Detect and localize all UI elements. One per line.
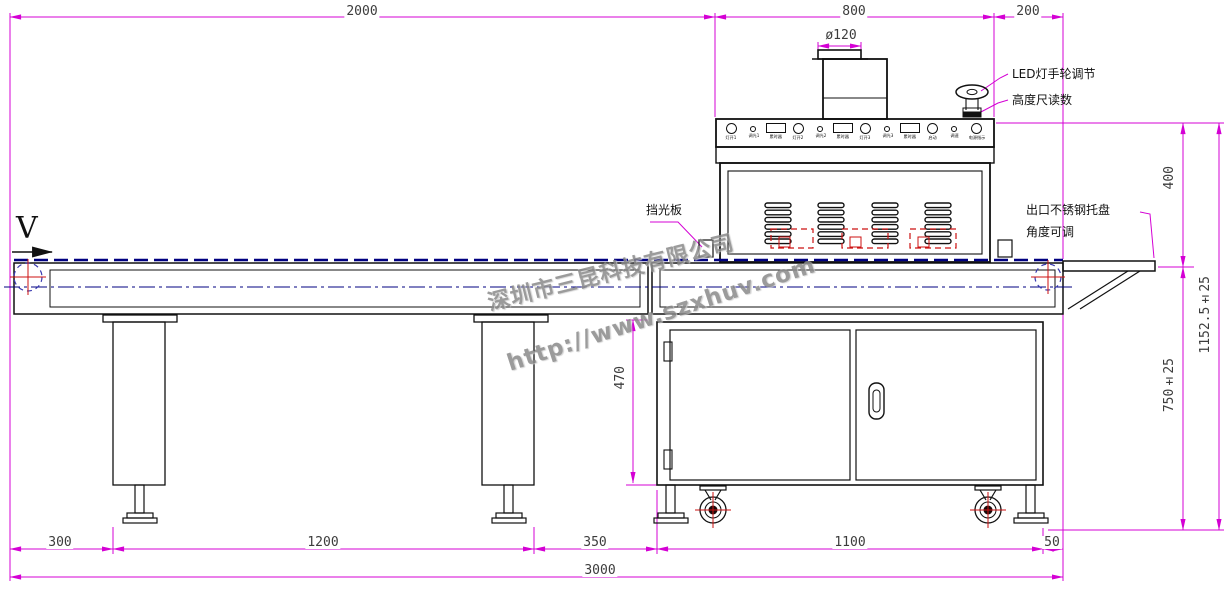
panel-control-7: 灯开3 bbox=[854, 120, 876, 146]
panel-control-label: 灯开3 bbox=[860, 135, 871, 141]
dim-right-total: 1152.5±25 bbox=[1199, 276, 1213, 354]
cabinet-door-right bbox=[856, 330, 1036, 480]
timer-display bbox=[900, 123, 920, 133]
panel-control-label: 累时器 bbox=[837, 134, 849, 140]
control-knob bbox=[971, 123, 982, 134]
door-hinge-top bbox=[664, 342, 672, 361]
panel-control-3: 累时器 bbox=[765, 120, 787, 146]
dim-top-800: 800 bbox=[840, 5, 867, 18]
control-knob bbox=[817, 126, 823, 132]
exhaust-duct bbox=[812, 50, 887, 119]
panel-control-label: 启动 bbox=[928, 135, 936, 141]
panel-control-9: 累时器 bbox=[899, 120, 921, 146]
conveyor-legs bbox=[103, 315, 548, 523]
control-knob bbox=[860, 123, 871, 134]
panel-control-12: 电源指示 bbox=[966, 120, 988, 146]
dim-bottom-50: 50 bbox=[1042, 536, 1062, 549]
panel-control-1: 灯开1 bbox=[720, 120, 742, 146]
panel-control-label: 累时器 bbox=[904, 134, 916, 140]
panel-control-8: 调光3 bbox=[876, 120, 898, 146]
casters bbox=[695, 486, 1006, 528]
panel-control-11: 调速 bbox=[943, 120, 965, 146]
control-knob bbox=[927, 123, 938, 134]
panel-control-label: 灯开2 bbox=[793, 135, 804, 141]
control-knob bbox=[884, 126, 890, 132]
label-velocity: V bbox=[16, 214, 38, 244]
outlet-tray bbox=[1063, 261, 1155, 309]
dim-right-400: 400 bbox=[1163, 166, 1177, 189]
dim-bottom-1100: 1100 bbox=[832, 536, 867, 549]
timer-display bbox=[766, 123, 786, 133]
label-light-baffle: 挡光板 bbox=[646, 203, 682, 217]
dim-bottom-1200: 1200 bbox=[305, 536, 340, 549]
panel-control-label: 调光3 bbox=[882, 133, 893, 139]
dim-bottom-3000: 3000 bbox=[582, 564, 617, 577]
panel-control-2: 调光1 bbox=[742, 120, 764, 146]
panel-control-label: 调光1 bbox=[748, 133, 759, 139]
dim-right-750: 750±25 bbox=[1163, 358, 1177, 412]
panel-control-4: 灯开2 bbox=[787, 120, 809, 146]
timer-display bbox=[833, 123, 853, 133]
control-knob bbox=[726, 123, 737, 134]
control-knob bbox=[951, 126, 957, 132]
drawing-canvas: 灯开1调光1累时器灯开2调光2累时器灯开3调光3累时器启动调速电源指示 2000… bbox=[0, 0, 1227, 597]
panel-control-label: 调速 bbox=[950, 133, 958, 139]
lamp-vent-louvers bbox=[765, 203, 951, 244]
control-knob bbox=[750, 126, 756, 132]
panel-control-10: 启动 bbox=[921, 120, 943, 146]
label-outlet-tray-2: 角度可调 bbox=[1026, 225, 1074, 239]
panel-control-label: 调光2 bbox=[815, 133, 826, 139]
dim-top-2000: 2000 bbox=[344, 5, 379, 18]
label-height-scale: 高度尺读数 bbox=[1012, 93, 1072, 107]
cad-line-work bbox=[0, 0, 1227, 597]
panel-control-label: 灯开1 bbox=[726, 135, 737, 141]
panel-control-6: 累时器 bbox=[832, 120, 854, 146]
light-baffle-right bbox=[998, 240, 1012, 257]
dim-duct-diameter: ø120 bbox=[823, 29, 858, 42]
uv-oven-body bbox=[699, 50, 1012, 262]
label-outlet-tray-1: 出口不锈钢托盘 bbox=[1026, 203, 1110, 217]
door-hinge-bottom bbox=[664, 450, 672, 469]
control-panel: 灯开1调光1累时器灯开2调光2累时器灯开3调光3累时器启动调速电源指示 bbox=[720, 120, 988, 146]
cabinet-door-left bbox=[670, 330, 850, 480]
dim-bottom-300: 300 bbox=[46, 536, 73, 549]
panel-control-label: 电源指示 bbox=[968, 135, 985, 141]
door-handle bbox=[869, 383, 884, 419]
control-knob bbox=[793, 123, 804, 134]
label-led-handwheel: LED灯手轮调节 bbox=[1012, 67, 1096, 81]
dim-bottom-350: 350 bbox=[581, 536, 608, 549]
dim-stand-470: 470 bbox=[614, 366, 628, 389]
panel-control-5: 调光2 bbox=[809, 120, 831, 146]
dim-top-200: 200 bbox=[1014, 5, 1041, 18]
panel-control-label: 累时器 bbox=[770, 134, 782, 140]
